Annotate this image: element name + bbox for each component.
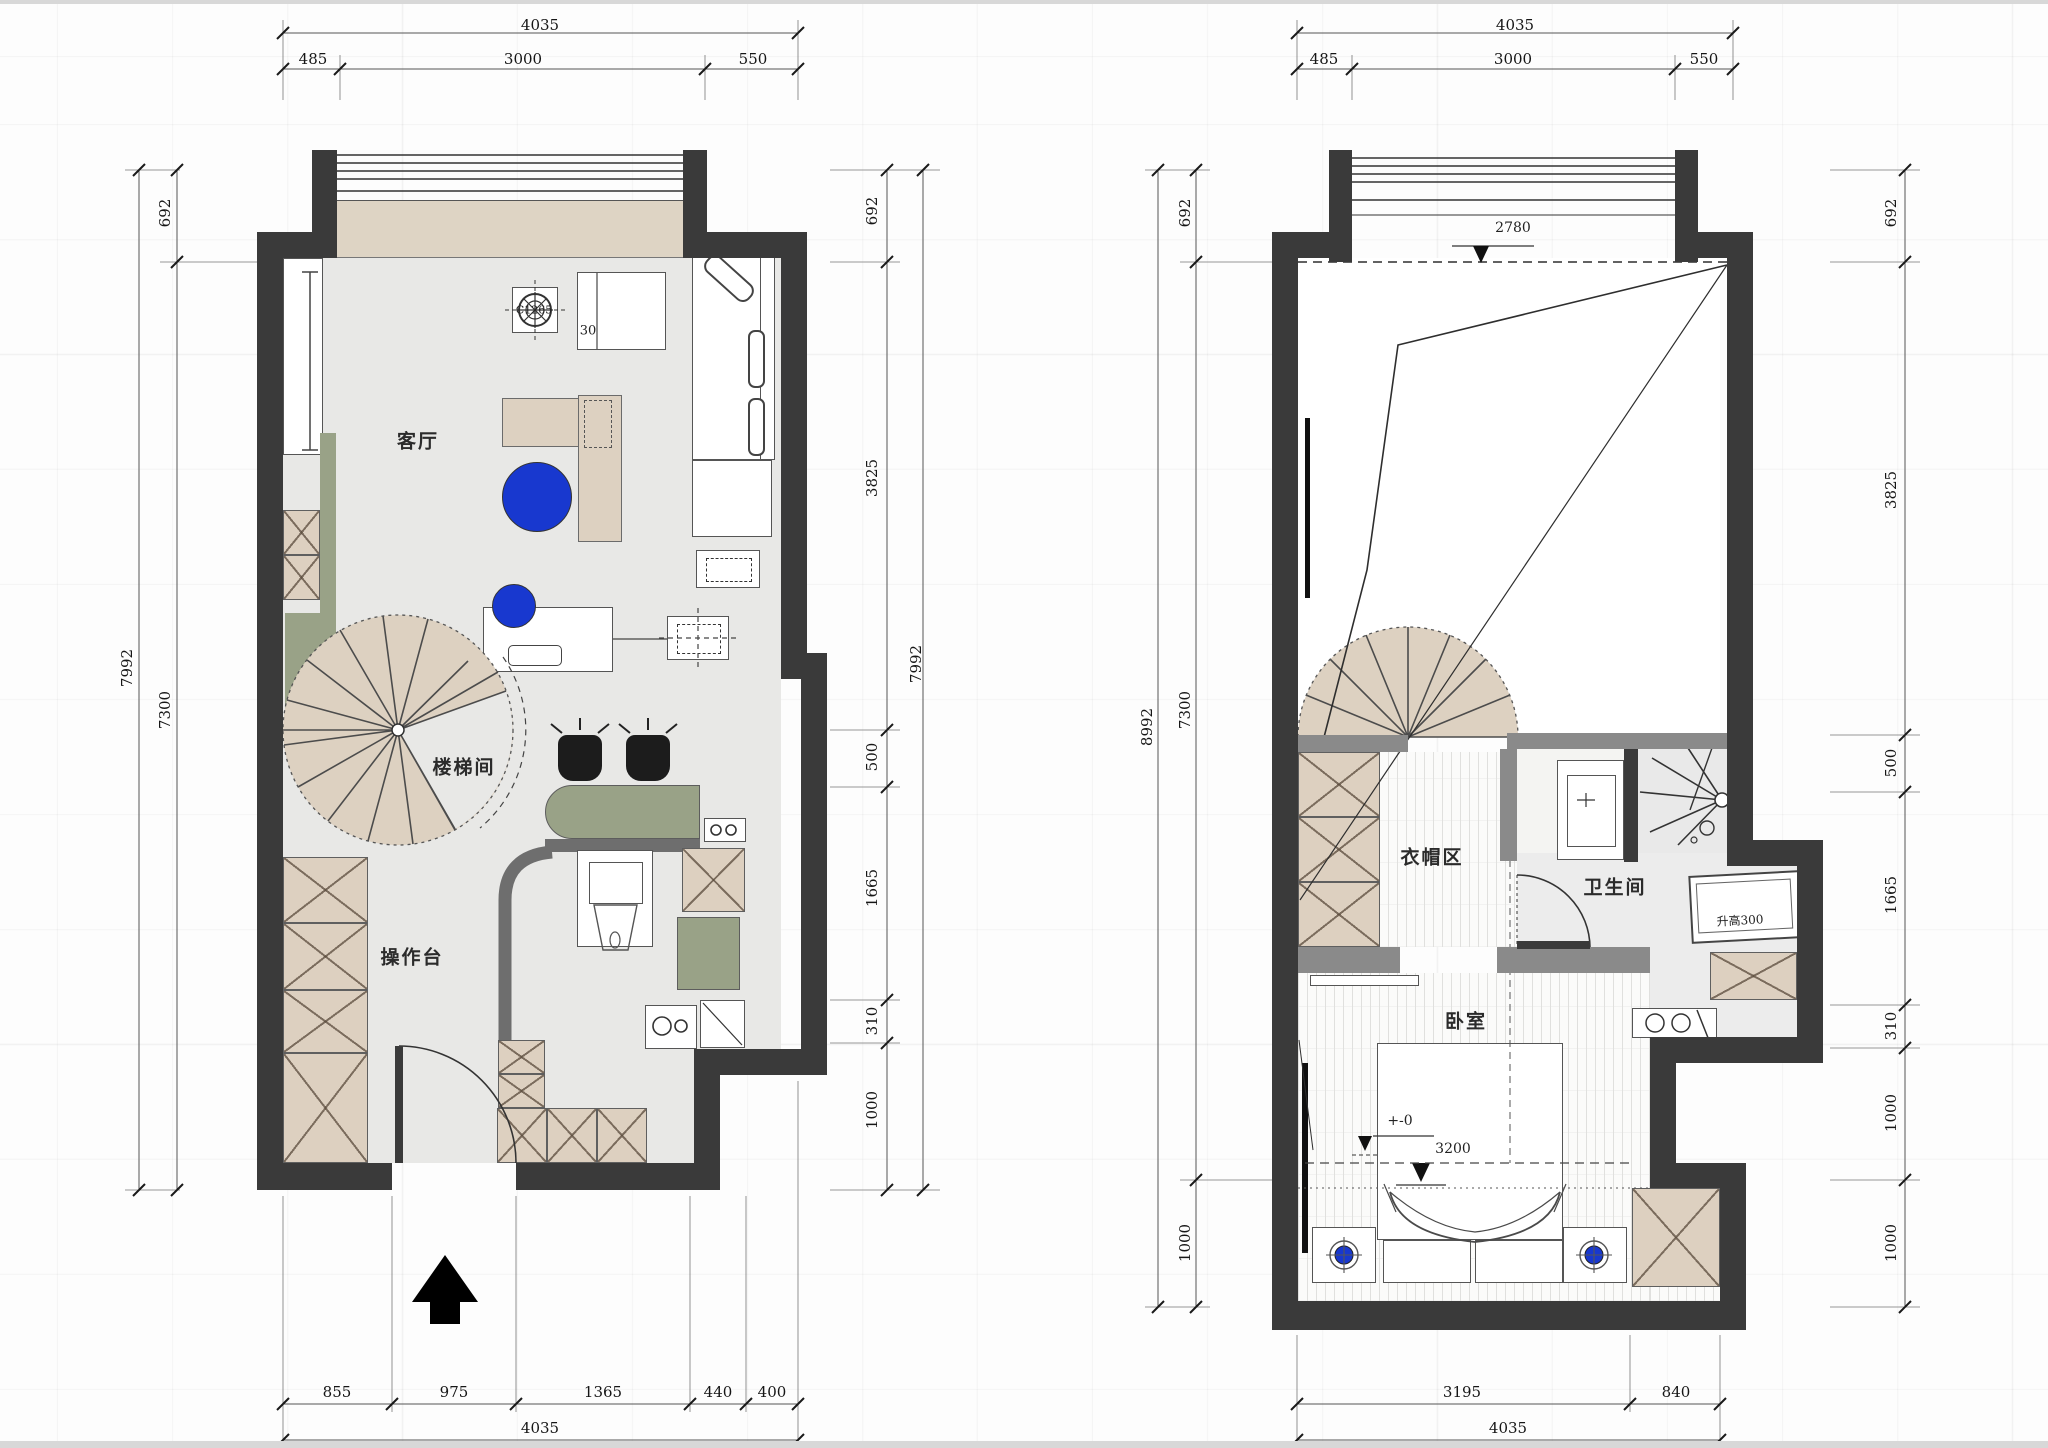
cloak-bath-divider <box>1500 749 1517 861</box>
room-label-bedroom: 卧室 <box>1445 1007 1487 1034</box>
r-wall-bump-right <box>1797 866 1823 1063</box>
dim: 840 <box>1662 1383 1691 1401</box>
ceiling-height-annotation: 2780 <box>1495 220 1531 236</box>
stair-landing-wall <box>1298 735 1408 752</box>
sink-circles <box>653 825 742 1045</box>
closet-rod <box>302 272 318 450</box>
wall-bottom-a <box>257 1163 392 1190</box>
bed-lamps <box>1326 1237 1612 1273</box>
bed-drape <box>1384 1184 1566 1242</box>
dim: 692 <box>156 199 174 228</box>
dim: 550 <box>1690 50 1719 68</box>
closet-niche-wall <box>257 258 270 455</box>
half-spiral-stair <box>1298 627 1518 737</box>
wall-connector <box>694 1075 720 1190</box>
dim: 310 <box>1882 1012 1900 1041</box>
room-label-worktop: 操作台 <box>380 943 443 970</box>
dim: 485 <box>1310 50 1339 68</box>
dim: 7300 <box>1176 691 1194 729</box>
wall-bottom-right <box>694 1049 827 1075</box>
dim: 550 <box>739 50 768 68</box>
north-arrow-icon <box>412 1255 478 1324</box>
window-glazing-lines <box>337 155 1675 215</box>
bed-dim-annotation: 3200 <box>1435 1141 1471 1157</box>
dim: 855 <box>323 1383 352 1401</box>
dim: 3195 <box>1443 1383 1481 1401</box>
dim: 500 <box>863 743 881 772</box>
dim: 4035 <box>521 16 559 34</box>
dim: 1000 <box>1882 1094 1900 1132</box>
dim: 4035 <box>521 1419 559 1437</box>
dim: 4035 <box>1489 1419 1527 1437</box>
r-wall-bump-top <box>1727 840 1823 866</box>
dim: 692 <box>1882 199 1900 228</box>
bay-pillar-right <box>683 150 707 258</box>
wall-bottom-b <box>516 1163 694 1190</box>
bath-door-leaf <box>1517 941 1590 949</box>
bottom-edge <box>0 1441 2048 1448</box>
cloak-bed-wall-l <box>1298 947 1400 973</box>
dim: 3000 <box>504 50 542 68</box>
room-label-stairwell: 楼梯间 <box>432 753 495 780</box>
dim: 3825 <box>1882 471 1900 509</box>
shower-fixture <box>1577 748 1729 845</box>
dim: 8992 <box>1138 708 1156 746</box>
dim: 485 <box>299 50 328 68</box>
appliance-detail <box>594 905 637 950</box>
bath-top-wall <box>1507 733 1727 749</box>
light-cross <box>659 608 737 668</box>
r-wall-step <box>1650 1163 1746 1188</box>
floorplan-canvas: 客厅 楼梯间 操作台 C1265 30 衣帽区 卫生间 卧室 2780 +-0 … <box>0 0 2048 1448</box>
dim: 7992 <box>118 649 136 687</box>
dim: 1665 <box>863 869 881 907</box>
dim: 1000 <box>863 1091 881 1129</box>
bay-pillar-left <box>312 150 337 258</box>
dim: 440 <box>704 1383 733 1401</box>
platform-annotation: 升高300 <box>1716 910 1764 929</box>
dim: 1000 <box>1176 1224 1194 1262</box>
dim: 7992 <box>907 645 925 683</box>
cloak-bed-wall-r <box>1497 947 1650 973</box>
dim: 975 <box>440 1383 469 1401</box>
wall-right-lower <box>801 653 827 1075</box>
r-bay-pillar-right <box>1675 150 1698 262</box>
dim: 4035 <box>1496 16 1534 34</box>
vanity-divider <box>1624 749 1638 862</box>
dim: 400 <box>758 1383 787 1401</box>
cabinet-annotation: 30 <box>580 324 597 339</box>
dim: 692 <box>863 197 881 226</box>
dim: 1665 <box>1882 876 1900 914</box>
room-label-living: 客厅 <box>397 427 439 454</box>
dim: 1365 <box>584 1383 622 1401</box>
r-wall-left <box>1272 232 1298 1301</box>
dim: 310 <box>863 1007 881 1036</box>
dim: 692 <box>1176 199 1194 228</box>
r-wall-right-upper <box>1727 232 1753 866</box>
stool-whiskers <box>551 718 677 733</box>
room-label-bath: 卫生间 <box>1583 873 1646 900</box>
counter-curve <box>505 852 552 1040</box>
wall-right-upper <box>781 232 807 660</box>
dim: 3825 <box>863 459 881 497</box>
fan-annotation: C1265 <box>516 304 552 317</box>
spiral-stair <box>283 615 526 845</box>
r-bay-pillar-left <box>1329 150 1352 262</box>
entry-door-leaf <box>395 1046 403 1163</box>
room-label-cloak: 衣帽区 <box>1400 843 1463 870</box>
top-edge <box>0 0 2048 4</box>
r-wall-bath-bottom <box>1650 1037 1823 1063</box>
dim: 7300 <box>156 691 174 729</box>
dim: 3000 <box>1494 50 1532 68</box>
dim: 500 <box>1882 749 1900 778</box>
r-wall-bottom <box>1272 1301 1746 1330</box>
dim: 1000 <box>1882 1224 1900 1262</box>
r-wall-top-left <box>1272 232 1329 258</box>
zero-level-annotation: +-0 <box>1387 1113 1412 1129</box>
